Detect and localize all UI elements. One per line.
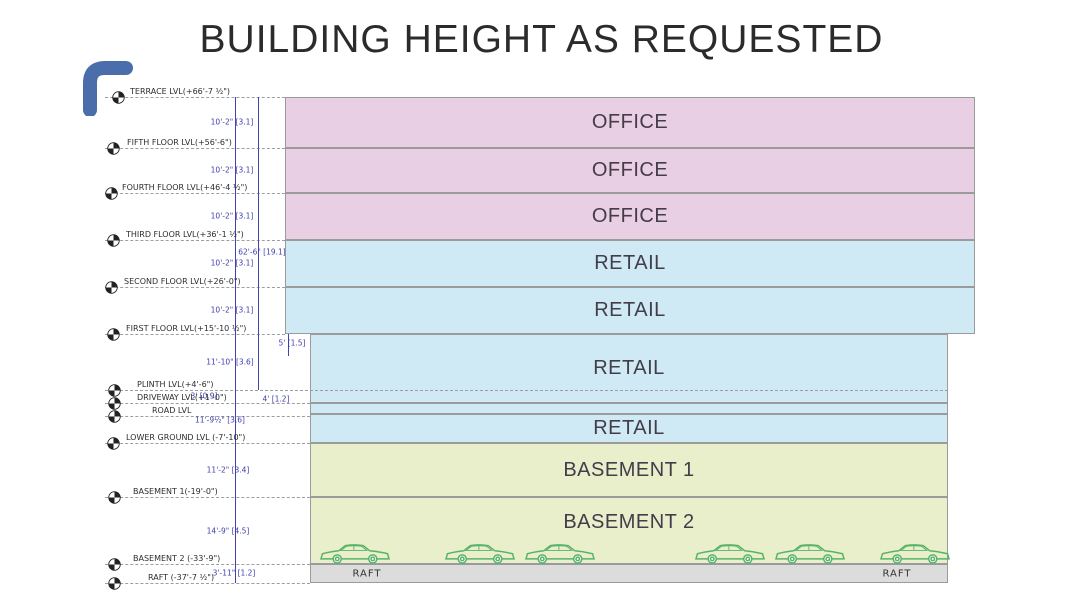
level-label: BASEMENT 1(-19'-0") (133, 487, 218, 496)
level-label: ROAD LVL (152, 406, 191, 415)
level-marker-icon (105, 187, 118, 205)
level-label: THIRD FLOOR LVL(+36'-1 ½") (126, 230, 244, 239)
level-line (105, 497, 310, 498)
band-label: BASEMENT 1 (563, 459, 694, 482)
level-label: LOWER GROUND LVL (-7'-10") (126, 433, 245, 442)
car-icon (878, 541, 952, 570)
level-marker-icon (107, 328, 120, 346)
level-label: RAFT (-37'-7 ½") (148, 573, 214, 582)
corner-accent-icon (82, 60, 134, 116)
level-marker-icon (108, 577, 121, 595)
dimension-line (258, 97, 259, 390)
dimension-label: 10'-2" [3.1] (211, 212, 254, 221)
dimension-label: 14'-9" [4.5] (207, 527, 250, 536)
car-icon (773, 541, 847, 570)
level-line (105, 390, 948, 391)
band-label: OFFICE (592, 205, 668, 228)
band-label: OFFICE (592, 159, 668, 182)
band-label: RETAIL (593, 357, 665, 380)
level-label: FOURTH FLOOR LVL(+46'-4 ½") (122, 183, 247, 192)
car-icon (523, 541, 597, 570)
band-raft (310, 564, 948, 583)
raft-label: RAFT (352, 569, 381, 580)
level-marker-icon (108, 491, 121, 509)
car-icon (693, 541, 767, 570)
level-marker-icon (108, 558, 121, 576)
car-icon (443, 541, 517, 570)
dimension-label: 10'-2" [3.1] (211, 259, 254, 268)
dimension-label: 10'-2" [3.1] (211, 166, 254, 175)
level-marker-icon (105, 281, 118, 299)
dimension-label: 3'-11" [1.2] (213, 569, 256, 578)
level-marker-icon (108, 410, 121, 428)
level-line (105, 583, 310, 584)
level-label: FIFTH FLOOR LVL(+56'-6") (127, 138, 232, 147)
level-label: FIRST FLOOR LVL(+15'-10 ½") (126, 324, 246, 333)
band-office: OFFICE (285, 148, 975, 193)
level-label: SECOND FLOOR LVL(+26'-0") (124, 277, 241, 286)
band-label: RETAIL (594, 252, 666, 275)
level-line (105, 564, 310, 565)
band-label: OFFICE (592, 111, 668, 134)
level-label: PLINTH LVL(+4'-6") (137, 380, 213, 389)
band-office: OFFICE (285, 193, 975, 240)
band-retail: RETAIL (310, 334, 948, 403)
car-icon (318, 541, 392, 570)
dimension-label: 11'-2" [3.4] (207, 466, 250, 475)
raft-label: RAFT (882, 569, 911, 580)
level-label: BASEMENT 2 (-33'-9") (133, 554, 220, 563)
page-title: BUILDING HEIGHT AS REQUESTED (0, 18, 1083, 62)
dimension-label: 10'-2" [3.1] (211, 118, 254, 127)
band-retail (310, 403, 948, 414)
dimension-label: 3' [0.9] (191, 392, 218, 401)
level-marker-icon (107, 437, 120, 455)
dimension-label: 4' [1.2] (263, 395, 290, 404)
slide-canvas: BUILDING HEIGHT AS REQUESTED OFFICEOFFIC… (0, 0, 1083, 610)
band-basement-1: BASEMENT 1 (310, 443, 948, 497)
band-label: RETAIL (593, 417, 665, 440)
dimension-label: 5' [1.5] (279, 339, 306, 348)
band-retail: RETAIL (310, 414, 948, 443)
dimension-label: 11'-9½" [3.6] (195, 416, 245, 425)
level-marker-icon (107, 234, 120, 252)
band-label: BASEMENT 2 (563, 511, 694, 534)
band-basement-2: BASEMENT 2 (310, 497, 948, 564)
dimension-label: 11'-10" [3.6] (206, 358, 253, 367)
level-marker-icon (107, 142, 120, 160)
dimension-label: 10'-2" [3.1] (211, 306, 254, 315)
level-line (105, 443, 310, 444)
band-retail: RETAIL (285, 240, 975, 287)
band-retail: RETAIL (285, 287, 975, 334)
band-office: OFFICE (285, 97, 975, 148)
level-label: TERRACE LVL(+66'-7 ½") (130, 87, 230, 96)
band-label: RETAIL (594, 299, 666, 322)
dimension-label: 62'-6" [19.1] (238, 248, 285, 257)
